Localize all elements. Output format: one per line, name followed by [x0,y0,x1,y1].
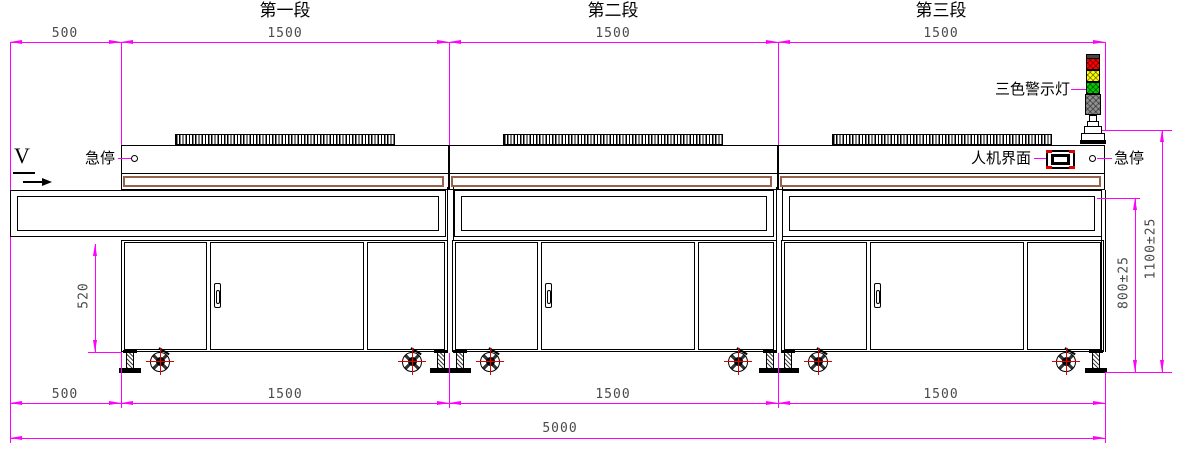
dim-overall-length: 5000 [520,422,600,435]
direction-underline [13,172,35,174]
dimension-arrow [1133,360,1137,372]
extension-line [10,42,11,190]
vent-grille [175,134,395,145]
direction-arrow-shaft [23,181,43,183]
cabinet-door [210,242,364,350]
foot-base [1085,368,1107,373]
cabinet-door [455,242,538,350]
dimension-arrow [121,401,133,405]
dimension-arrow [449,40,461,44]
tower-light-leader [1071,89,1086,90]
hmi-label: 人机界面 [971,151,1031,168]
dimension-arrow [778,40,790,44]
segment-3-title: 第三段 [881,2,1001,19]
extension-line [1105,372,1172,373]
dimension-arrow [449,401,461,405]
door-handle-latch [216,290,220,304]
dimension-arrow [109,401,121,405]
foot-base [119,368,141,373]
dimension-line [1162,130,1163,372]
dim-bottom-1500-1: 1500 [245,388,325,401]
leveling-foot [437,352,445,369]
end-panel [1101,190,1106,352]
dim-bottom-1500-2: 1500 [573,388,653,401]
vent-grille [832,134,1052,145]
tower-light-green [1086,82,1100,94]
dimension-arrow [437,401,449,405]
conveyor-belt [461,196,767,231]
tower-light-red [1086,58,1100,70]
hmi-leader [1034,158,1046,159]
extension-line [1105,42,1106,130]
dim-top-1500-2: 1500 [573,27,653,40]
hmi-corner-mark [1046,166,1052,169]
estop-right-leader [1097,158,1112,159]
hmi-corner-mark [1069,150,1075,153]
vent-grille [503,134,723,145]
direction-label: V [14,145,30,167]
dim-bottom-500: 500 [35,388,95,401]
dimension-arrow [766,40,778,44]
tower-light-body [1085,94,1101,115]
tower-light-mount-lower [1081,133,1105,141]
leveling-foot [1092,352,1100,369]
door-handle-latch [547,290,551,304]
conveyor-belt [789,196,1095,231]
direction-arrow-head [42,178,52,186]
dimension-arrow [1160,130,1164,142]
extension-line [1105,372,1106,443]
extension-line [88,352,121,353]
estop-right-label: 急停 [1114,151,1144,168]
dim-overall-height: 1100±25 [1145,209,1158,289]
machine-body-split [121,173,1105,174]
extension-line [121,42,122,145]
estop-left-leader [118,158,131,159]
tower-light-yellow [1086,70,1100,82]
dimension-arrow [93,340,97,352]
dimension-arrow [1093,40,1105,44]
hmi-corner-mark [1046,150,1052,153]
dimension-line [1135,198,1136,372]
leveling-foot [784,352,792,369]
dimension-arrow [766,401,778,405]
cabinet-door [870,242,1024,350]
dimension-arrow [778,401,790,405]
dimension-line [10,403,1105,404]
dim-belt-height: 800±25 [1118,243,1131,323]
cabinet-door [784,242,867,350]
caster-crosshair-v [818,348,819,375]
caster-crosshair-v [412,348,413,375]
foot-base [777,368,799,373]
cabinet-door [541,242,695,350]
extension-line [449,42,450,145]
segment-1-title: 第一段 [225,2,345,19]
caster-crosshair-v [1066,348,1067,375]
cabinet-door [1027,242,1101,350]
dimension-arrow [1160,360,1164,372]
estop-left-button [131,155,138,162]
dimension-line [10,42,1105,43]
cabinet-door [698,242,774,350]
tower-light-label: 三色警示灯 [995,82,1070,99]
conveyor-belt [17,196,439,231]
dimension-arrow [109,40,121,44]
dimension-arrow [1093,436,1105,440]
leveling-foot [126,352,134,369]
hmi-corner-mark [1069,166,1075,169]
dimension-arrow [93,244,97,256]
extension-line [10,237,11,443]
dimension-line [95,244,96,352]
estop-right-button [1089,155,1096,162]
dimension-arrow [10,436,22,440]
door-handle-latch [876,290,880,304]
hmi-screen-frame [1051,154,1070,165]
dimension-arrow [121,40,133,44]
dim-top-500: 500 [35,27,95,40]
estop-left-label: 急停 [85,151,115,168]
dimension-arrow [10,40,22,44]
leveling-foot [766,352,774,369]
dim-top-1500-1: 1500 [245,27,325,40]
cabinet-door [367,242,445,350]
dimension-line [10,438,1105,439]
cabinet-door [124,242,207,350]
caster-crosshair-v [738,348,739,375]
leveling-foot [456,352,464,369]
window-trim [780,176,1101,187]
caster-crosshair-v [490,348,491,375]
dim-bottom-1500-3: 1500 [901,388,981,401]
dimension-arrow [437,40,449,44]
support-post [447,187,454,241]
support-post [776,187,783,241]
window-trim [123,176,444,187]
dimension-arrow [10,401,22,405]
caster-crosshair-v [160,348,161,375]
extension-line [778,42,779,145]
dim-top-1500-3: 1500 [901,27,981,40]
window-trim [451,176,772,187]
dimension-arrow [1093,401,1105,405]
foot-base [449,368,471,373]
dim-cabinet-height: 520 [78,256,91,336]
dimension-arrow [1133,198,1137,210]
segment-2-title: 第二段 [553,2,673,19]
assembly-line-drawing: 第一段 第二段 第三段 500 1500 1500 1500 500 1500 … [0,0,1177,449]
